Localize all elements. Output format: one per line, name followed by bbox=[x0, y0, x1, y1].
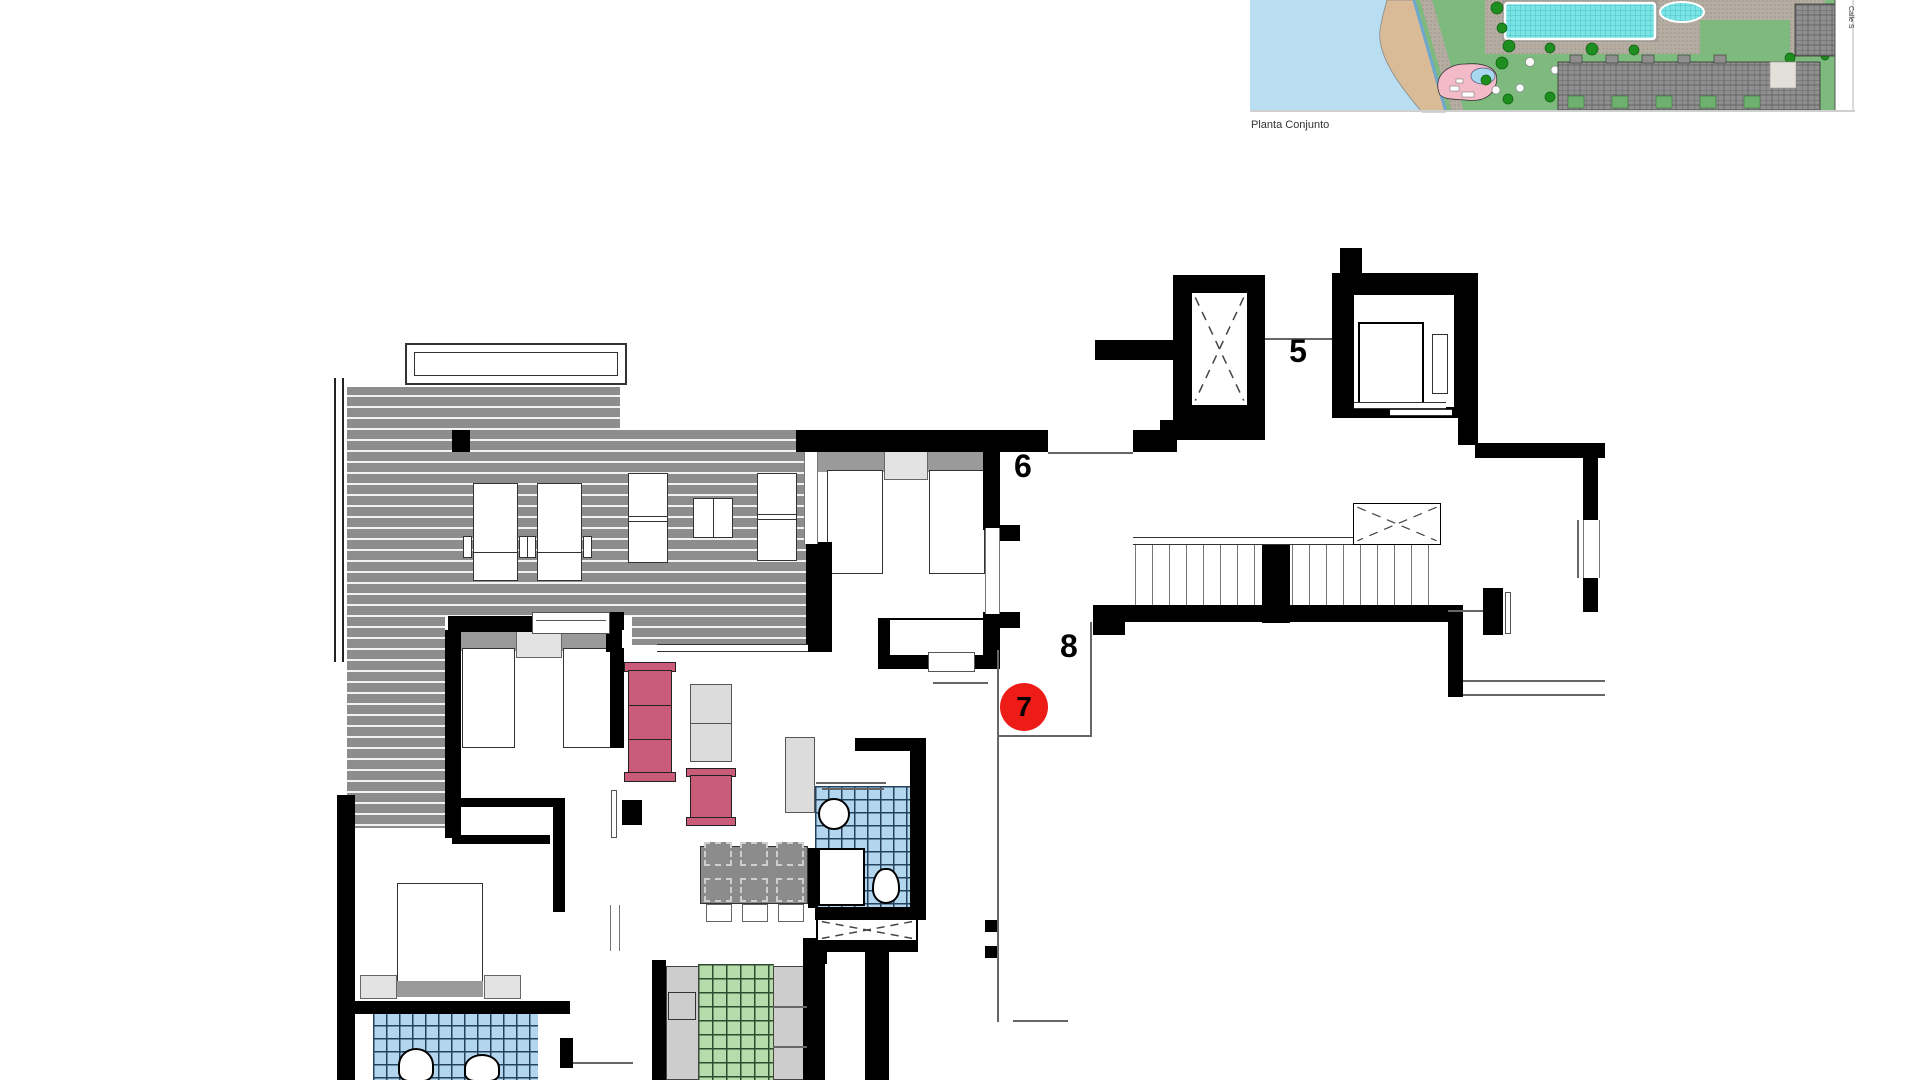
terrace-railing bbox=[334, 378, 344, 662]
window bbox=[804, 452, 818, 544]
sofa bbox=[628, 670, 672, 774]
dining-chair bbox=[740, 842, 768, 866]
plan-line bbox=[1013, 1020, 1068, 1022]
door-opening bbox=[610, 905, 620, 951]
floor-plan-sheet: 5 6 8 7 bbox=[0, 0, 1920, 1080]
vent-shaft bbox=[816, 918, 918, 942]
elevator-handrail bbox=[1432, 334, 1448, 394]
wall-segment bbox=[445, 630, 461, 838]
round-pool bbox=[1660, 2, 1704, 22]
plan-line bbox=[773, 1006, 807, 1008]
plan-line bbox=[998, 735, 1092, 737]
kitchen-sink-unit bbox=[668, 992, 696, 1020]
bidet bbox=[464, 1054, 500, 1080]
wall-segment bbox=[1160, 420, 1265, 440]
wall-segment bbox=[652, 960, 666, 1080]
wall-segment bbox=[1093, 605, 1450, 622]
window bbox=[985, 528, 1000, 614]
plan-line bbox=[1463, 694, 1605, 696]
wall-segment bbox=[855, 738, 912, 751]
wall-segment bbox=[910, 738, 926, 910]
plan-line bbox=[1048, 452, 1133, 454]
void-x-icon bbox=[1354, 504, 1440, 544]
lounger-armrest bbox=[463, 536, 472, 558]
plan-line bbox=[1463, 680, 1605, 682]
toilet bbox=[872, 868, 900, 904]
lounger-armrest bbox=[583, 536, 592, 558]
bed bbox=[462, 648, 515, 748]
door-threshold bbox=[928, 652, 975, 672]
highlighted-unit-badge: 7 bbox=[1000, 683, 1048, 731]
wall-segment bbox=[1583, 578, 1598, 612]
sun-lounger bbox=[473, 483, 518, 581]
wall-segment bbox=[1093, 605, 1125, 635]
wall-segment bbox=[337, 795, 355, 1080]
stair-void bbox=[1353, 503, 1441, 545]
plan-line bbox=[822, 788, 884, 790]
wall-segment bbox=[997, 612, 1020, 628]
plan-line bbox=[1448, 610, 1483, 612]
window bbox=[1583, 520, 1600, 578]
kitchen-counter bbox=[666, 966, 699, 1080]
stair-railing bbox=[1133, 537, 1359, 545]
wall-segment bbox=[553, 798, 565, 912]
terrace-decking bbox=[345, 386, 808, 828]
patio-table bbox=[693, 498, 733, 538]
window-line bbox=[1577, 520, 1579, 578]
wall-segment bbox=[1448, 605, 1463, 697]
sofa-armrest bbox=[624, 772, 676, 782]
dining-chair bbox=[776, 842, 804, 866]
nightstand bbox=[884, 450, 928, 480]
terrace-column bbox=[452, 430, 470, 452]
site-plan-caption: Planta Conjunto bbox=[1251, 119, 1329, 131]
bed bbox=[397, 883, 483, 985]
nightstand bbox=[360, 975, 397, 999]
patio-chair bbox=[628, 473, 668, 563]
wall-segment bbox=[1475, 443, 1605, 458]
unit-label-8: 8 bbox=[1060, 630, 1078, 662]
shower-tray bbox=[818, 848, 865, 906]
wall-segment bbox=[865, 950, 889, 1080]
dining-chair bbox=[706, 904, 732, 922]
wall-segment bbox=[806, 542, 832, 652]
plan-line bbox=[773, 1046, 807, 1048]
bed bbox=[929, 470, 985, 574]
plan-line bbox=[933, 682, 988, 684]
lounger-armrest bbox=[527, 536, 536, 558]
bed bbox=[563, 648, 616, 748]
wall-segment bbox=[808, 848, 818, 908]
wall-segment bbox=[1095, 340, 1177, 360]
plan-line bbox=[997, 650, 999, 1022]
elevator-door bbox=[1390, 409, 1452, 416]
inset-border bbox=[1250, 110, 1855, 112]
unit-label-5: 5 bbox=[1281, 335, 1315, 367]
kitchen-counter bbox=[773, 966, 807, 1080]
dining-chair bbox=[704, 842, 732, 866]
site-plan-inset: Calle S bbox=[1250, 0, 1855, 118]
wall-segment bbox=[997, 525, 1020, 541]
toilet bbox=[398, 1048, 434, 1080]
plan-line bbox=[1090, 622, 1092, 736]
plan-line bbox=[816, 782, 886, 784]
coffee-table bbox=[690, 684, 732, 762]
wall-segment bbox=[610, 648, 624, 748]
wall-segment bbox=[807, 950, 827, 964]
elevator-car bbox=[1358, 322, 1424, 404]
sun-lounger bbox=[537, 483, 582, 581]
terrace-planter bbox=[405, 343, 627, 385]
dining-chair bbox=[704, 878, 732, 902]
nightstand bbox=[484, 975, 521, 999]
swimming-pool bbox=[1505, 3, 1655, 39]
armchair-armrest bbox=[686, 817, 736, 826]
unit-label-6: 6 bbox=[1014, 450, 1032, 482]
wall-segment bbox=[796, 430, 1048, 452]
terrace-edge bbox=[657, 644, 808, 652]
patio-chair bbox=[757, 473, 797, 561]
vent-x-icon bbox=[818, 920, 916, 940]
dining-chair bbox=[742, 904, 768, 922]
elevator-door bbox=[1354, 402, 1446, 409]
dining-chair bbox=[776, 878, 804, 902]
bed bbox=[827, 470, 883, 574]
elevator-shaft-void bbox=[1192, 293, 1247, 405]
stair-flight bbox=[1135, 545, 1260, 605]
wall-segment bbox=[1583, 458, 1598, 520]
wall-segment bbox=[460, 798, 557, 807]
shaft-x-icon bbox=[1192, 293, 1247, 405]
armchair bbox=[690, 775, 732, 819]
wall-segment bbox=[352, 1001, 570, 1014]
plan-line bbox=[573, 1062, 633, 1064]
door-leaf bbox=[611, 790, 617, 838]
wall-segment bbox=[622, 800, 642, 825]
highlighted-unit-number: 7 bbox=[1016, 691, 1032, 723]
kitchen-floor bbox=[698, 964, 774, 1080]
shower-basin bbox=[818, 798, 850, 830]
door-leaf bbox=[1505, 592, 1511, 634]
bed-headboard bbox=[397, 981, 483, 997]
street-label: Calle S bbox=[1847, 6, 1854, 29]
wall-segment bbox=[1340, 248, 1362, 275]
dining-chair bbox=[778, 904, 804, 922]
sideboard bbox=[785, 737, 815, 813]
wall-segment bbox=[1483, 588, 1503, 635]
wall-segment bbox=[452, 835, 550, 844]
dining-chair bbox=[740, 878, 768, 902]
wall-segment bbox=[560, 1038, 573, 1068]
window-sill bbox=[532, 612, 610, 634]
planter-inner bbox=[414, 352, 618, 376]
stair-flight bbox=[1292, 545, 1430, 605]
lawn-patch bbox=[1700, 20, 1790, 54]
wall-segment bbox=[983, 450, 1000, 530]
wall-segment bbox=[1458, 418, 1478, 445]
plaza bbox=[1770, 62, 1796, 88]
